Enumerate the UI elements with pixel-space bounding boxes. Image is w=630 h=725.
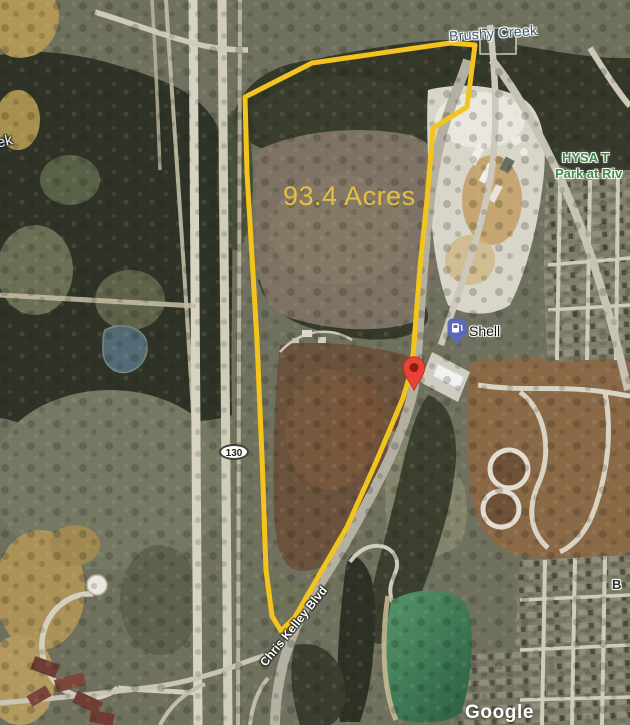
photo-grain	[0, 0, 630, 725]
map-viewport[interactable]: Brushy Creek ek 93.4 Acres HYSA T Park a…	[0, 0, 630, 725]
location-pin[interactable]	[401, 355, 427, 392]
satellite-terrain	[0, 0, 630, 725]
gas-station-pin[interactable]	[446, 317, 468, 348]
